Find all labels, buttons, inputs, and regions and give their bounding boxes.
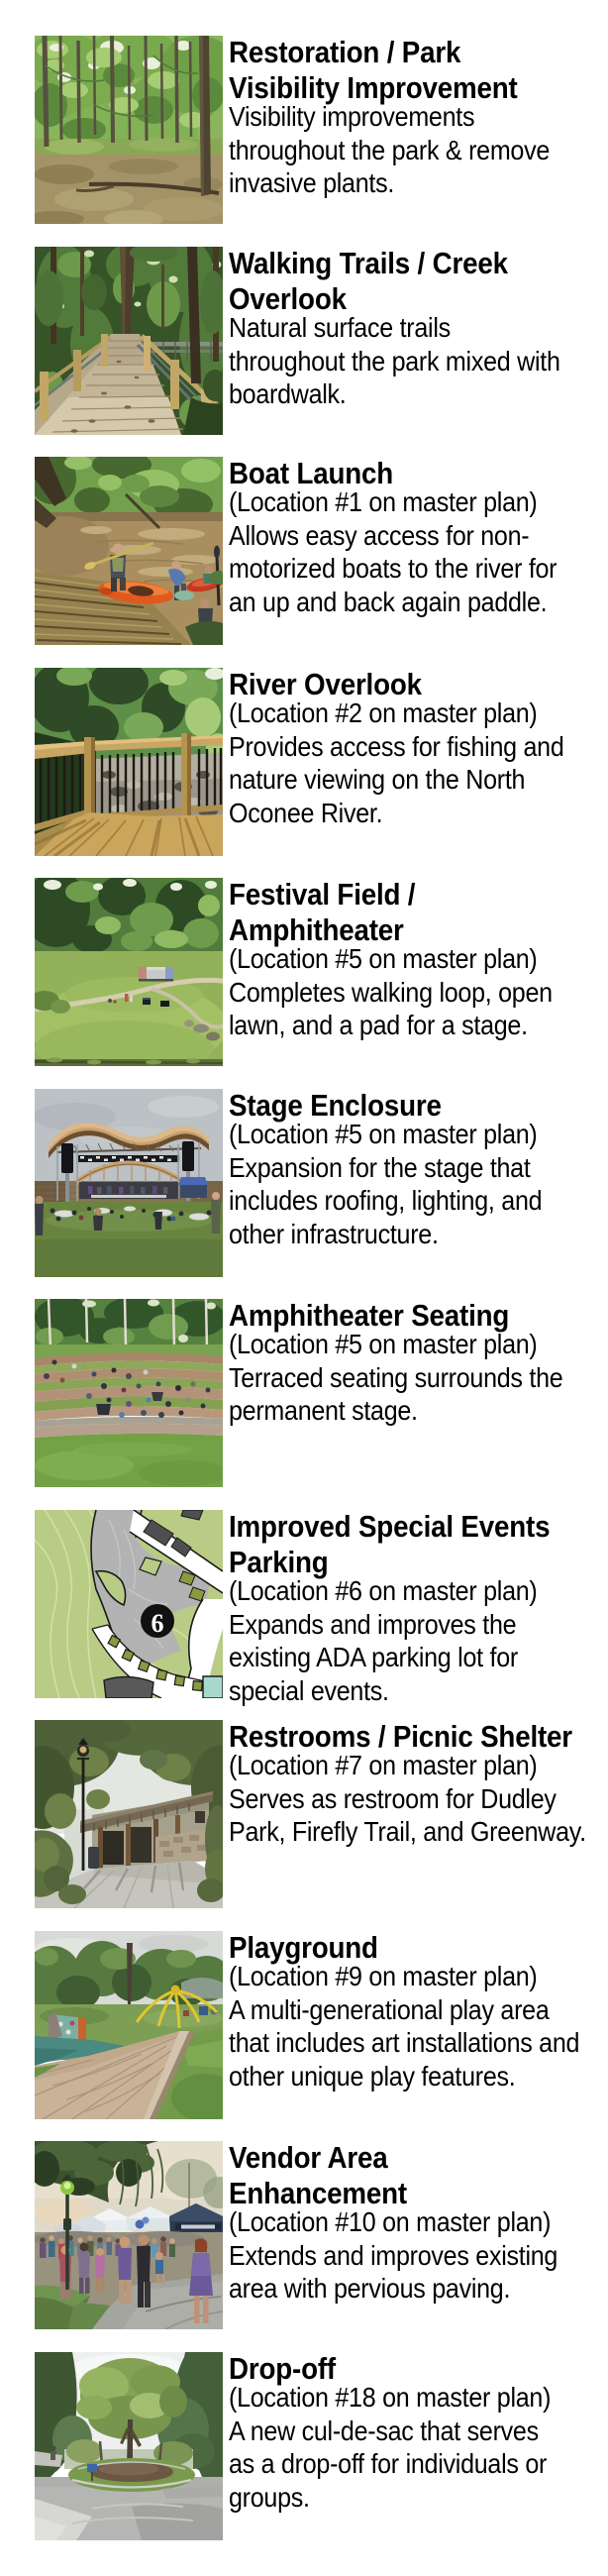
svg-text:6: 6 [152, 1609, 164, 1638]
